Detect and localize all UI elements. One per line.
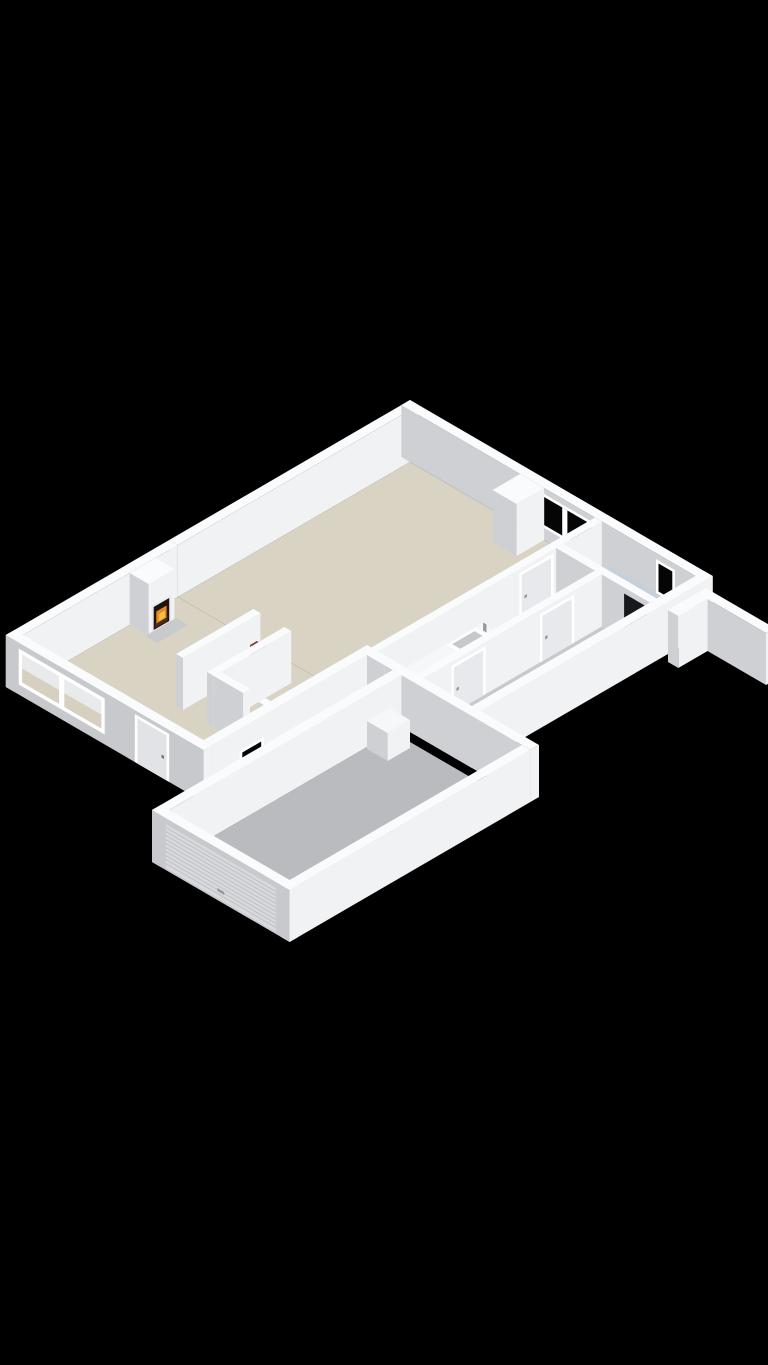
wall-niche-west-left-face [176, 654, 183, 710]
wall-niche-east-left-face [207, 672, 214, 728]
floor-plan-canvas [0, 0, 768, 1365]
wall-garage-southwest-right-face [290, 885, 299, 942]
dining-window-mullion [562, 508, 567, 539]
wall-garage-north-right-face [530, 745, 539, 802]
garden-wall-return-left-face [668, 610, 678, 668]
floor-plan-stage [0, 0, 768, 1365]
fireplace-chimney-left-face [130, 573, 149, 636]
front-window-mullion [59, 676, 64, 707]
